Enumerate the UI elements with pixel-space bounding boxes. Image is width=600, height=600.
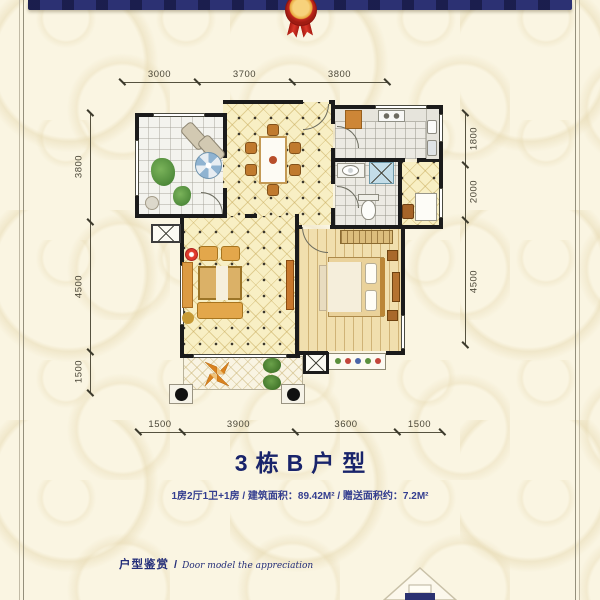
decor — [409, 585, 431, 593]
wall — [330, 225, 443, 229]
dim-label: 1500 — [74, 352, 85, 392]
dining-chair-icon — [245, 142, 257, 154]
sofa-icon — [197, 302, 243, 319]
footer-zh: 户型鉴赏 — [119, 556, 169, 572]
dim-label: 3000 — [122, 69, 197, 80]
dim-label: 3700 — [197, 69, 292, 80]
flower-icon — [345, 358, 351, 364]
shaft-icon — [303, 352, 329, 374]
rosette-medal-icon — [285, 0, 317, 26]
table-runner-icon — [216, 266, 228, 300]
dim-label: 1500 — [397, 419, 442, 430]
dline — [122, 82, 388, 83]
right-border-line-inner — [575, 0, 576, 600]
dining-chair-icon — [267, 184, 279, 196]
dim-label: 3600 — [295, 419, 397, 430]
wall — [223, 188, 227, 218]
footer-caption: 户型鉴赏 / Door model the appreciation — [119, 556, 313, 572]
column-icon — [287, 388, 300, 401]
appliance-icon — [427, 140, 437, 156]
dresser-icon — [392, 272, 400, 302]
centerpiece-icon — [269, 156, 277, 164]
house-outline-icon — [383, 566, 457, 600]
window — [439, 114, 443, 142]
column-icon — [175, 388, 188, 401]
dim-label: 1500 — [138, 419, 182, 430]
decor — [205, 362, 217, 374]
toilet-icon — [361, 200, 376, 220]
wall — [180, 354, 193, 358]
stove-icon — [378, 110, 405, 122]
decor — [405, 593, 435, 600]
wall — [287, 354, 300, 358]
umbrella-table-icon — [195, 152, 222, 179]
dim-label: 2000 — [469, 172, 480, 212]
sofa-side-seats-icon — [182, 262, 193, 308]
flower-icon — [375, 358, 381, 364]
headboard — [380, 258, 385, 316]
dim-label: 3900 — [182, 419, 295, 430]
wall — [295, 214, 299, 358]
flower-icon — [355, 358, 361, 364]
left-border-line-outer — [19, 0, 20, 600]
wall — [331, 148, 335, 184]
decor-icon — [182, 312, 194, 324]
tv-cabinet-icon — [286, 260, 294, 310]
floor-plan — [135, 100, 447, 408]
unit-subtitle: 1房2厅1卫+1房 / 建筑面积：89.42M² / 赠送面积约：7.2M² — [0, 487, 600, 502]
shower-icon — [369, 162, 394, 184]
nightstand-icon — [387, 250, 398, 261]
dining-chair-icon — [245, 164, 257, 176]
flower-icon — [365, 358, 371, 364]
bed-blanket — [328, 262, 362, 312]
kitchen-sink-icon — [427, 120, 437, 134]
column-base — [169, 384, 193, 404]
window — [401, 315, 405, 349]
footer-en: Door model the appreciation — [182, 561, 313, 571]
pillow-icon — [365, 263, 377, 284]
poster-page: 3000 3700 3800 3800 4500 1500 1800 2000 … — [0, 0, 600, 600]
flower-icon — [335, 358, 341, 364]
left-border-line-inner — [23, 0, 24, 600]
dining-chair-icon — [289, 164, 301, 176]
dim-label: 3800 — [74, 147, 85, 187]
dining-chair-icon — [267, 124, 279, 136]
floor-lamp-icon — [185, 248, 198, 261]
dim-label: 1800 — [469, 119, 480, 159]
wall — [401, 229, 405, 315]
desk-icon — [415, 193, 437, 221]
kitchen-cabinet-icon — [345, 110, 362, 129]
right-border-line-outer — [579, 0, 580, 600]
potted-plant-icon — [151, 158, 175, 186]
window — [135, 140, 139, 196]
ac-platform-icon — [151, 224, 181, 243]
wall — [245, 214, 257, 218]
unit-title: 3栋B户型 — [0, 444, 600, 478]
window — [153, 113, 205, 117]
dim-label: 4500 — [469, 262, 480, 302]
window — [439, 188, 443, 218]
compass-rose-motif — [201, 358, 233, 390]
wall — [398, 162, 402, 229]
nightstand-icon — [387, 310, 398, 321]
armchair-icon — [199, 246, 218, 261]
potted-plant-icon — [263, 375, 281, 390]
footer-separator: / — [174, 559, 177, 571]
dim-label: 3800 — [292, 69, 387, 80]
armchair-icon — [221, 246, 240, 261]
wall — [223, 100, 303, 104]
dim-label: 4500 — [74, 267, 85, 307]
side-table-icon — [145, 196, 159, 210]
dining-chair-icon — [289, 142, 301, 154]
decor — [217, 374, 229, 386]
dline — [465, 113, 466, 345]
bathroom-sink-icon — [342, 165, 359, 176]
wardrobe-icon — [340, 230, 393, 244]
wall — [386, 351, 405, 355]
column-base — [281, 384, 305, 404]
chair-icon — [402, 204, 414, 219]
bedroom-rug-icon — [319, 265, 327, 311]
pillow-icon — [365, 290, 377, 311]
